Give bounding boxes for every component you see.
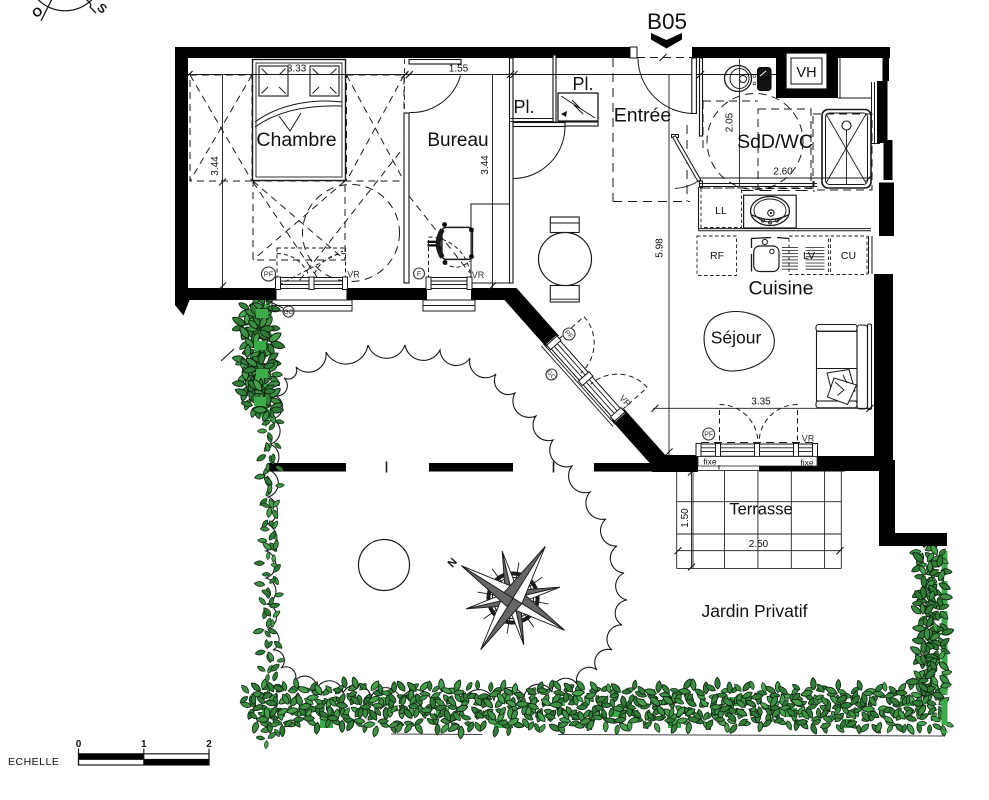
svg-text:2.05: 2.05 [725, 112, 736, 132]
svg-text:5.98: 5.98 [655, 238, 666, 258]
svg-text:0: 0 [76, 739, 82, 750]
svg-text:Cuisine: Cuisine [748, 278, 813, 300]
svg-text:1.50: 1.50 [680, 508, 691, 528]
svg-text:GC: GC [284, 309, 294, 316]
svg-text:3.44: 3.44 [480, 155, 491, 175]
svg-text:VR: VR [802, 434, 815, 444]
svg-text:Entrée: Entrée [614, 105, 671, 127]
svg-text:3.33: 3.33 [287, 64, 307, 75]
svg-text:fixe: fixe [703, 457, 717, 467]
svg-text:Pl.: Pl. [572, 74, 593, 94]
svg-text:LV: LV [803, 250, 815, 262]
svg-text:VR: VR [472, 270, 485, 280]
svg-text:2.50: 2.50 [749, 539, 769, 550]
svg-text:Jardin Privatif: Jardin Privatif [701, 601, 807, 621]
svg-text:PF: PF [704, 432, 713, 439]
svg-text:VH: VH [796, 65, 816, 81]
svg-text:RF: RF [710, 250, 724, 262]
svg-text:2: 2 [206, 739, 212, 750]
svg-text:3.44: 3.44 [210, 156, 221, 176]
svg-text:3.35: 3.35 [751, 397, 771, 408]
svg-text:2.60: 2.60 [773, 167, 793, 178]
svg-text:1: 1 [141, 739, 147, 750]
svg-text:F: F [417, 271, 421, 278]
svg-text:Bureau: Bureau [427, 130, 488, 151]
svg-text:VR: VR [347, 270, 360, 280]
svg-text:LL: LL [715, 205, 727, 217]
svg-text:fixe: fixe [800, 458, 814, 468]
svg-text:PF: PF [264, 270, 274, 279]
svg-text:B05: B05 [647, 9, 687, 34]
svg-text:1.55: 1.55 [449, 64, 469, 75]
svg-text:Terrasse: Terrasse [729, 501, 792, 519]
svg-text:ECHELLE: ECHELLE [8, 756, 59, 768]
svg-text:Séjour: Séjour [711, 328, 762, 348]
svg-text:SdD/WC: SdD/WC [737, 131, 813, 153]
svg-text:CU: CU [841, 250, 856, 262]
svg-text:Chambre: Chambre [256, 129, 336, 151]
svg-text:Pl.: Pl. [513, 97, 534, 117]
